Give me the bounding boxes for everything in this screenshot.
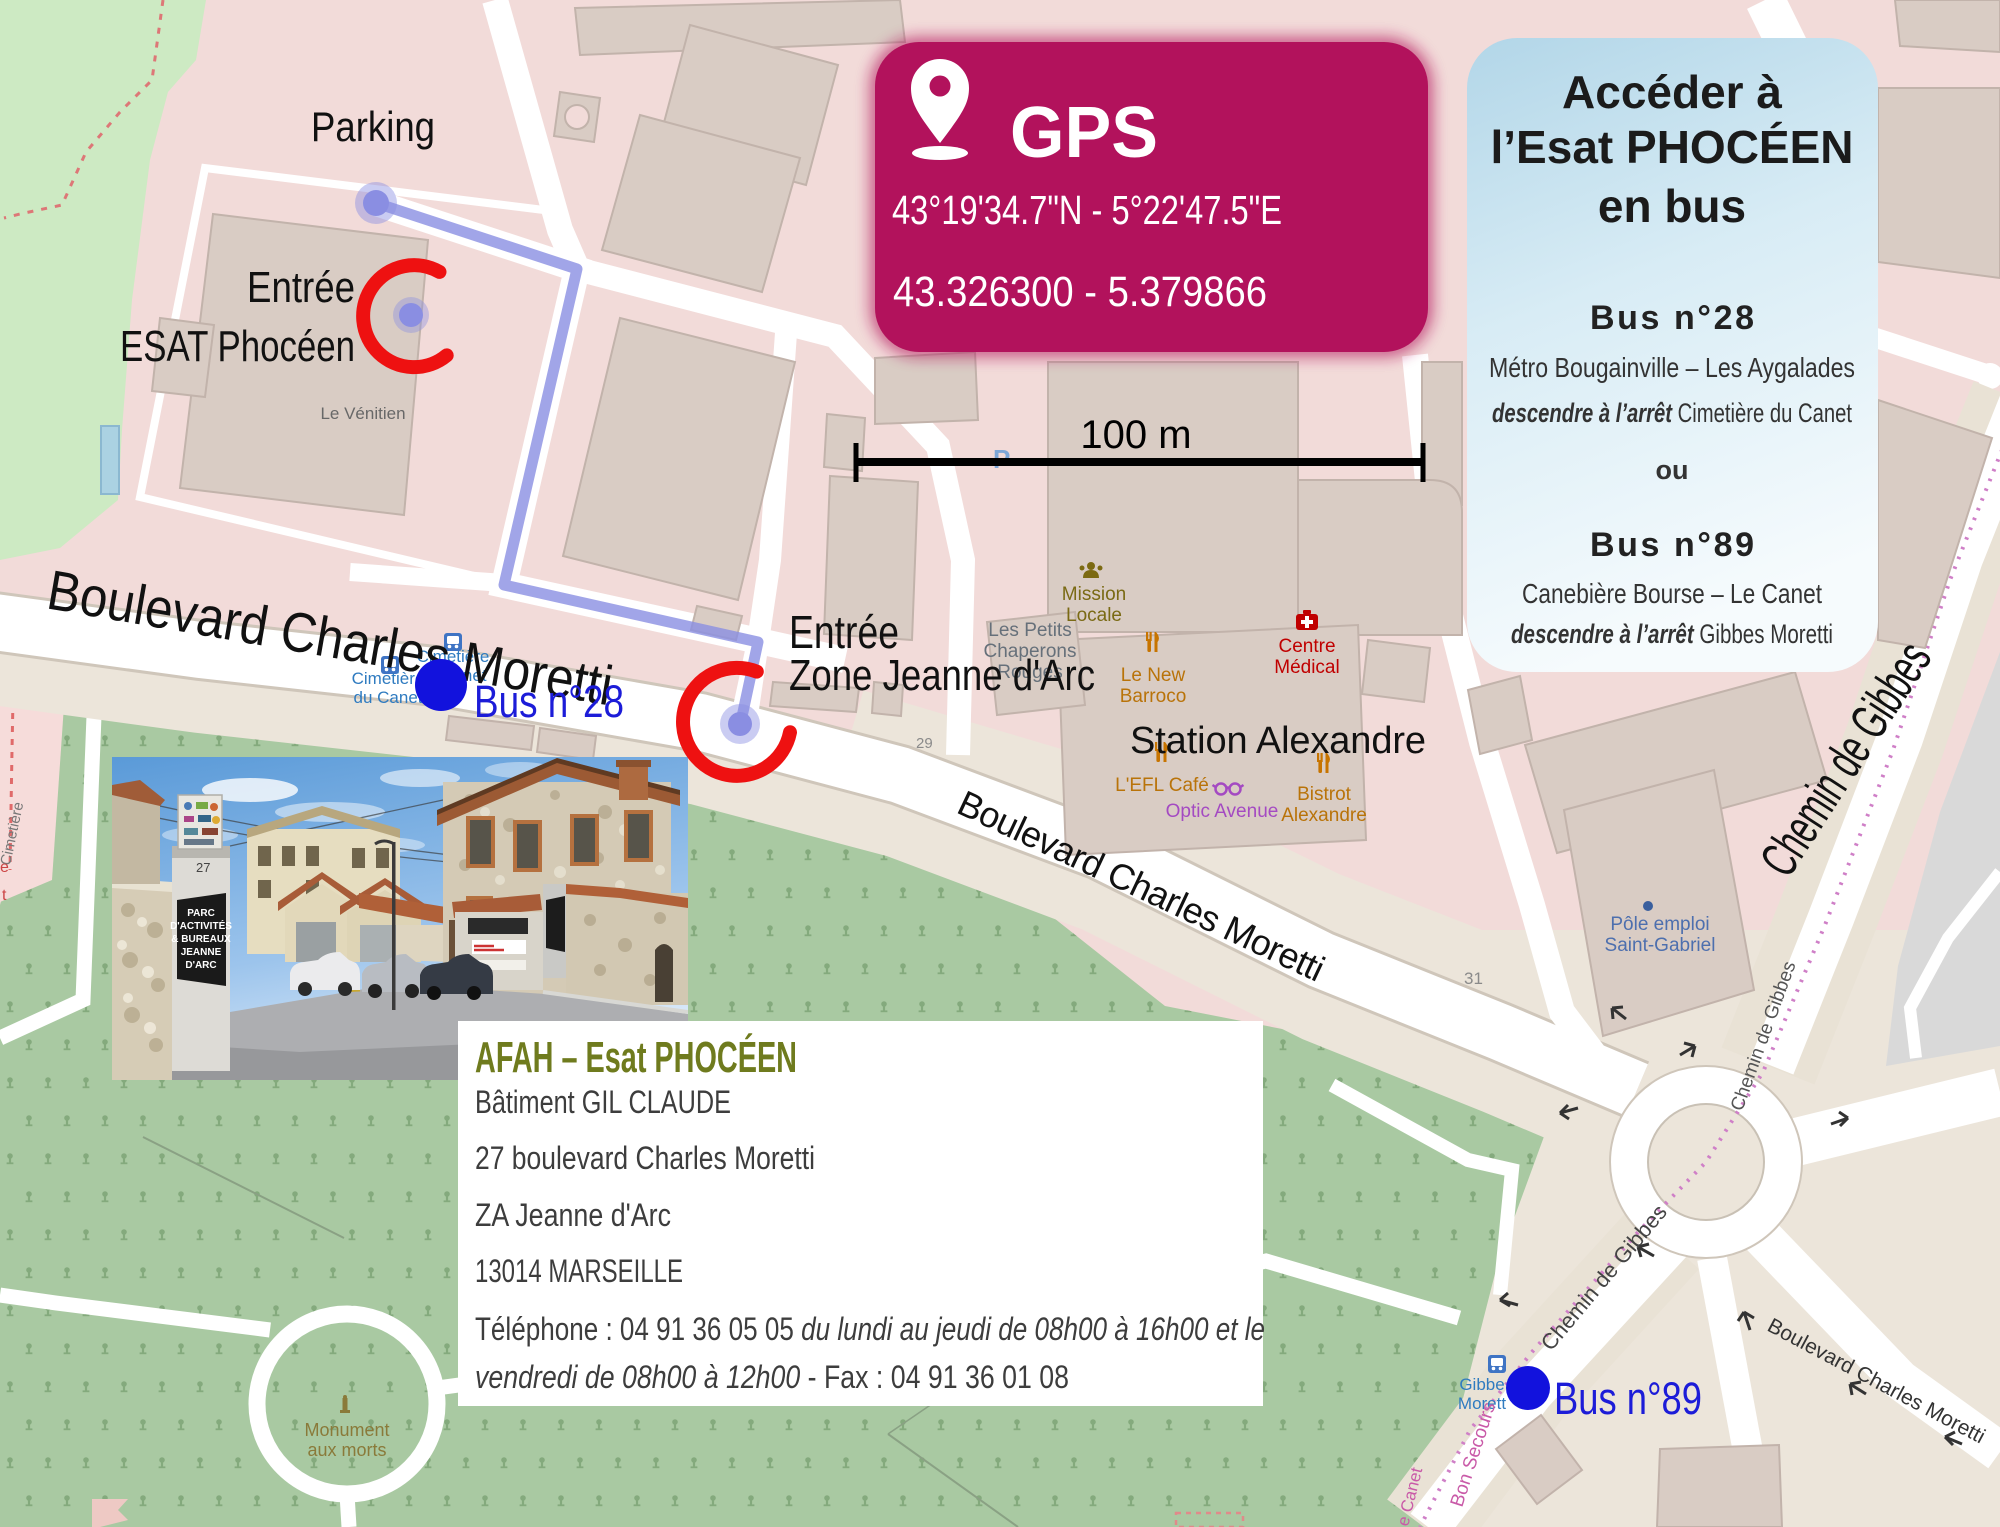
- svg-text:Accéder à: Accéder à: [1562, 66, 1782, 118]
- svg-text:en bus: en bus: [1598, 180, 1746, 232]
- svg-text:D'ACTIVITÉS: D'ACTIVITÉS: [170, 919, 232, 932]
- svg-text:D'ARC: D'ARC: [185, 960, 216, 971]
- svg-text:Gibbe: Gibbe: [1459, 1375, 1504, 1394]
- svg-text:descendre à l’arrêt Cimetière: descendre à l’arrêt Cimetière du Canet: [1492, 398, 1852, 428]
- svg-text:43.326300 - 5.379866: 43.326300 - 5.379866: [893, 268, 1267, 316]
- svg-text:Alexandre: Alexandre: [1281, 805, 1367, 826]
- svg-text:Le New: Le New: [1121, 665, 1186, 686]
- svg-text:JEANNE: JEANNE: [181, 947, 222, 958]
- svg-text:Téléphone : 04 91 36 05 05 du: Téléphone : 04 91 36 05 05 du lundi au j…: [475, 1311, 1265, 1347]
- svg-text:vendredi de 08h00 à 12h00 - Fa: vendredi de 08h00 à 12h00 - Fax : 04 91 …: [475, 1359, 1069, 1395]
- svg-text:Médical: Médical: [1274, 657, 1339, 678]
- svg-text:43°19'34.7"N - 5°22'47.5"E: 43°19'34.7"N - 5°22'47.5"E: [892, 187, 1282, 233]
- svg-text:ZA Jeanne d'Arc: ZA Jeanne d'Arc: [475, 1197, 671, 1233]
- svg-text:Bus n°89: Bus n°89: [1554, 1373, 1702, 1424]
- svg-text:l’Esat PHOCÉEN: l’Esat PHOCÉEN: [1491, 121, 1854, 173]
- svg-text:27: 27: [196, 860, 210, 875]
- svg-text:PARC: PARC: [187, 908, 215, 919]
- svg-text:Le Vénitien: Le Vénitien: [320, 404, 405, 423]
- svg-text:Station Alexandre: Station Alexandre: [1130, 720, 1426, 762]
- svg-text:Mission: Mission: [1062, 584, 1126, 605]
- svg-text:GPS: GPS: [1010, 93, 1158, 173]
- svg-text:Centre: Centre: [1278, 636, 1335, 657]
- svg-text:Zone Jeanne d'Arc: Zone Jeanne d'Arc: [789, 651, 1095, 700]
- svg-text:L'EFL Café: L'EFL Café: [1115, 775, 1209, 796]
- svg-text:Saint-Gabriel: Saint-Gabriel: [1605, 935, 1716, 956]
- svg-text:descendre à l’arrêt Gibbes Mor: descendre à l’arrêt Gibbes Moretti: [1511, 619, 1833, 649]
- svg-text:29: 29: [916, 735, 933, 752]
- svg-text:AFAH – Esat PHOCÉEN: AFAH – Esat PHOCÉEN: [475, 1032, 797, 1082]
- svg-text:Bâtiment GIL CLAUDE: Bâtiment GIL CLAUDE: [475, 1084, 731, 1120]
- svg-text:t: t: [2, 887, 7, 904]
- svg-text:Locale: Locale: [1066, 605, 1122, 626]
- svg-text:du Canet: du Canet: [354, 688, 423, 707]
- svg-text:13014 MARSEILLE: 13014 MARSEILLE: [475, 1253, 683, 1289]
- svg-text:Monument: Monument: [304, 1420, 389, 1440]
- svg-text:Parking: Parking: [311, 103, 435, 150]
- svg-text:27 boulevard Charles Moretti: 27 boulevard Charles Moretti: [475, 1140, 815, 1176]
- svg-text:e: e: [0, 859, 9, 876]
- svg-text:Bistrot: Bistrot: [1297, 784, 1352, 805]
- svg-text:Bus n°28: Bus n°28: [474, 676, 624, 727]
- svg-text:ESAT Phocéen: ESAT Phocéen: [120, 322, 355, 371]
- svg-text:100 m: 100 m: [1080, 413, 1191, 457]
- svg-text:Entrée: Entrée: [247, 263, 355, 312]
- svg-text:Canebière Bourse – Le Canet: Canebière Bourse – Le Canet: [1522, 578, 1822, 609]
- svg-text:Optic Avenue: Optic Avenue: [1166, 801, 1279, 822]
- svg-text:Les Petits: Les Petits: [988, 620, 1071, 641]
- svg-text:31: 31: [1464, 969, 1483, 988]
- svg-text:& BUREAUX: & BUREAUX: [171, 934, 231, 945]
- svg-text:Barroco: Barroco: [1120, 686, 1187, 707]
- svg-text:Pôle emploi: Pôle emploi: [1610, 914, 1709, 935]
- svg-text:ou: ou: [1656, 455, 1689, 485]
- svg-text:Métro Bougainville – Les Aygal: Métro Bougainville – Les Aygalades: [1489, 352, 1855, 383]
- svg-text:aux morts: aux morts: [307, 1440, 386, 1460]
